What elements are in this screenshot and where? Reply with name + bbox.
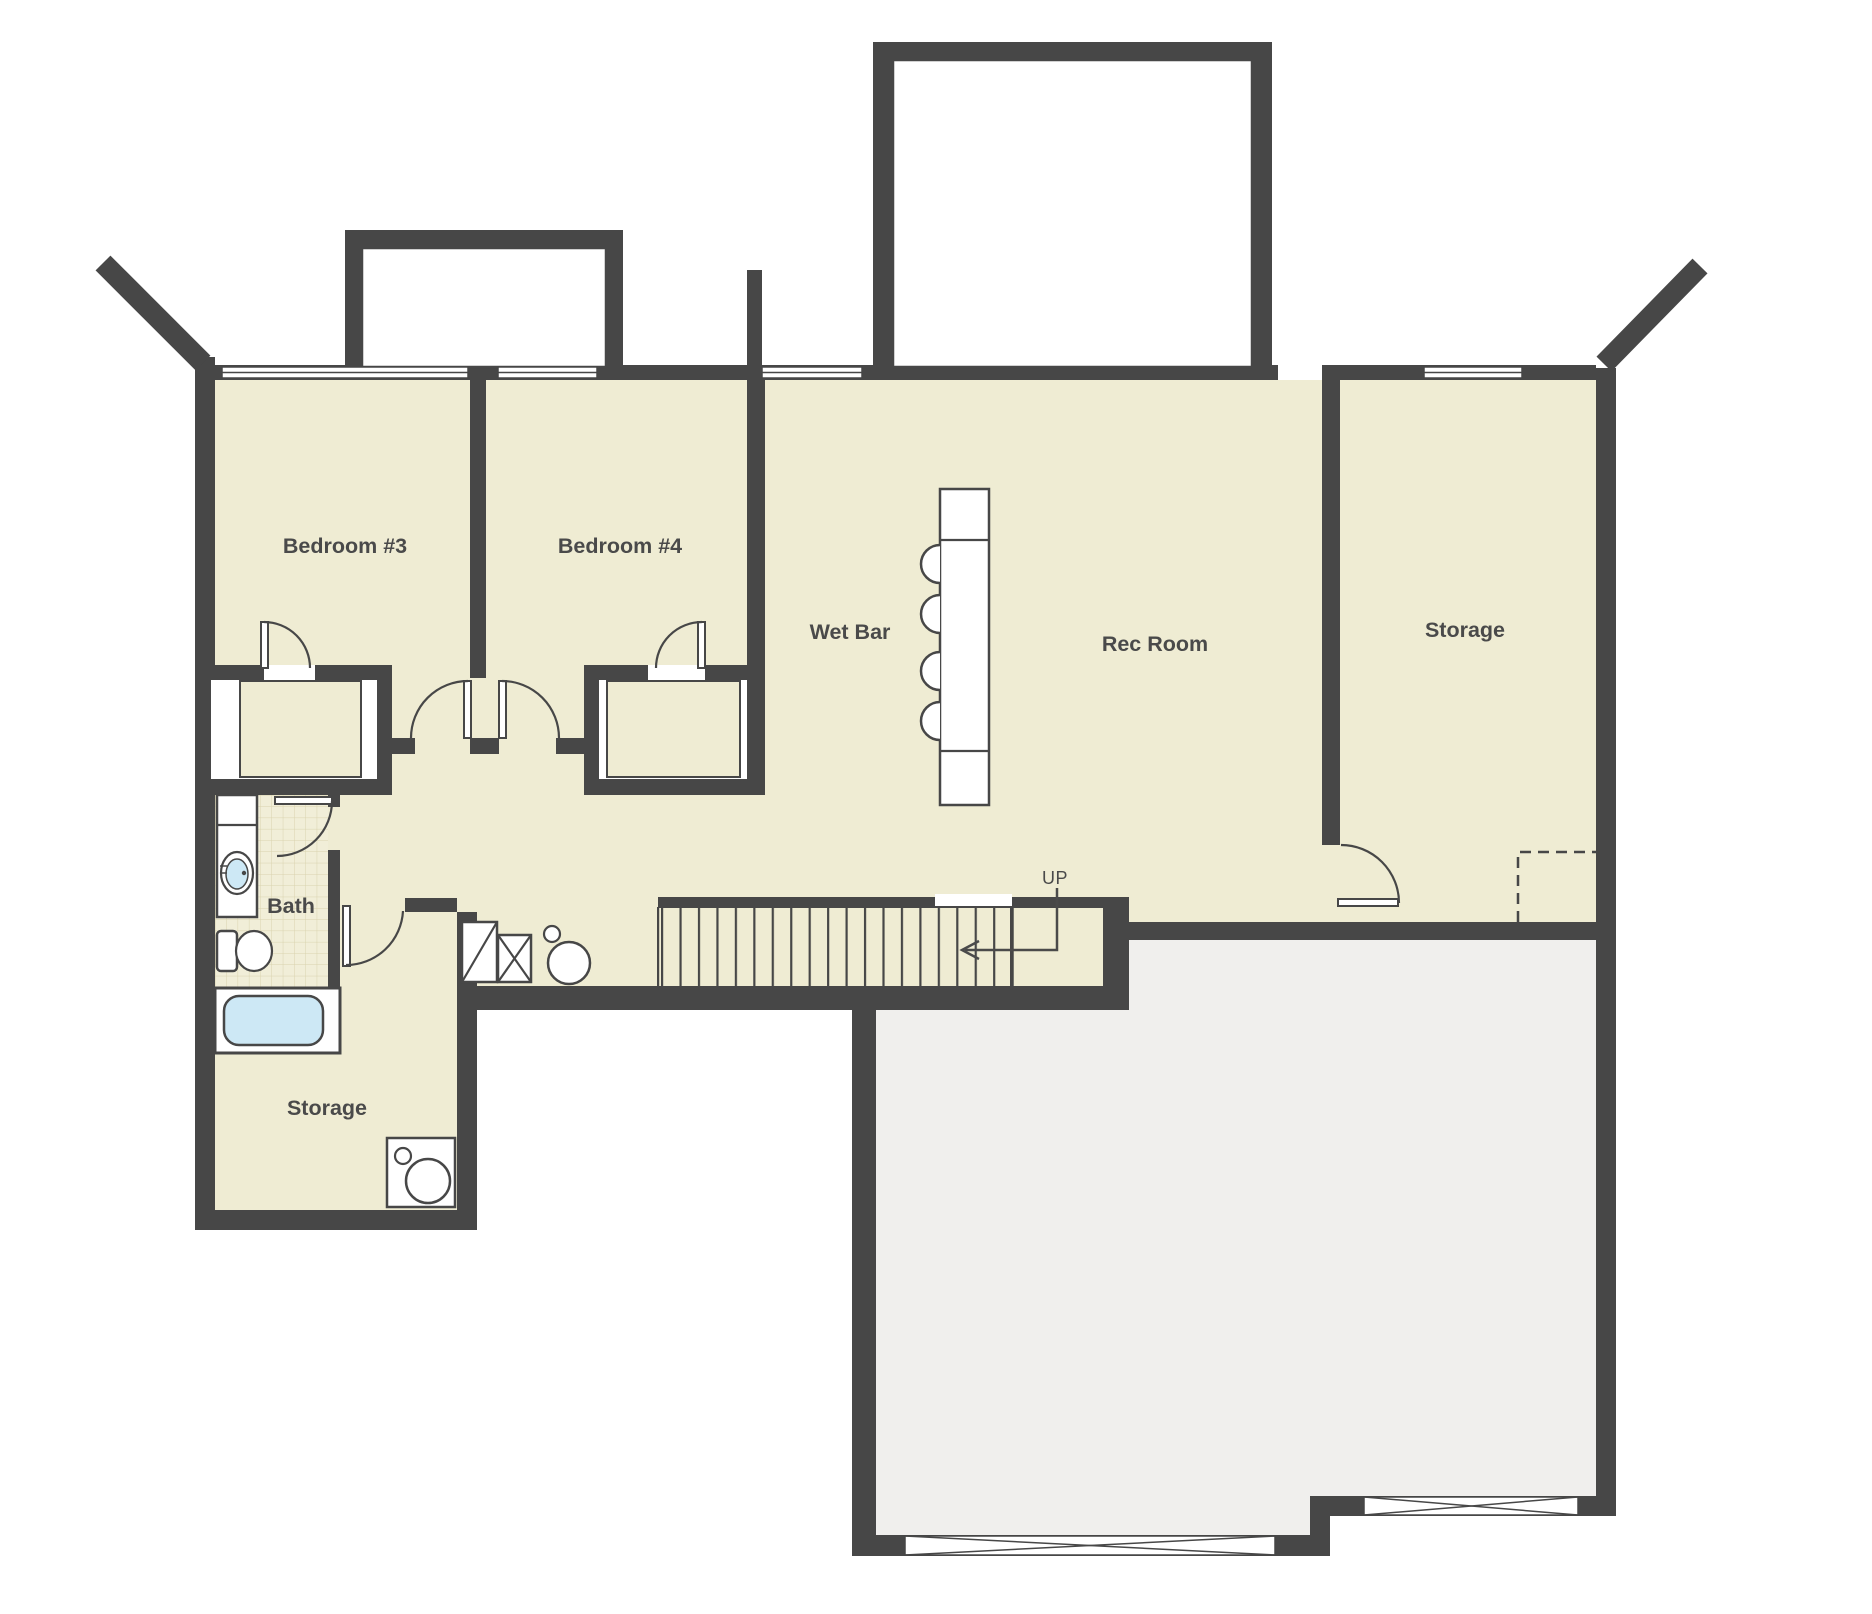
storage-right-room xyxy=(1340,380,1596,922)
diagonal-wall-top-right xyxy=(1604,266,1700,364)
window-well-large xyxy=(873,42,1272,373)
bedroom-3-room xyxy=(215,380,470,738)
room-label-storage-right: Storage xyxy=(1425,618,1505,642)
rec-room-room xyxy=(765,380,1322,922)
garage-door-marker xyxy=(905,1536,1275,1555)
room-label-bedroom-3: Bedroom #3 xyxy=(283,534,407,558)
unfinished-floor xyxy=(876,940,1596,1535)
floor-plan-canvas: UP xyxy=(0,0,1872,1614)
window xyxy=(498,367,597,378)
room-label-storage-lower: Storage xyxy=(287,1096,367,1120)
bedroom-4-room xyxy=(486,380,747,738)
window xyxy=(762,367,862,378)
room-label-wet-bar: Wet Bar xyxy=(810,620,891,644)
furnace-icon xyxy=(462,922,497,982)
sump-icon xyxy=(544,926,560,942)
ac-unit-icon xyxy=(498,935,531,982)
window xyxy=(222,367,468,378)
storage-lower-room xyxy=(215,912,457,1210)
floor-plan-page: UP xyxy=(0,0,1872,1614)
room-label-bath: Bath xyxy=(267,894,315,918)
diagonal-wall-top-left xyxy=(103,263,203,363)
window xyxy=(1424,367,1522,378)
room-label-bedroom-4: Bedroom #4 xyxy=(558,534,682,558)
garage-door-marker xyxy=(1364,1497,1578,1515)
window-well-bedrooms xyxy=(345,230,623,373)
window-well-side-wall xyxy=(747,270,762,380)
water-heater-icon xyxy=(548,942,590,984)
wall-opening xyxy=(1278,365,1322,380)
room-label-rec-room: Rec Room xyxy=(1102,632,1208,656)
